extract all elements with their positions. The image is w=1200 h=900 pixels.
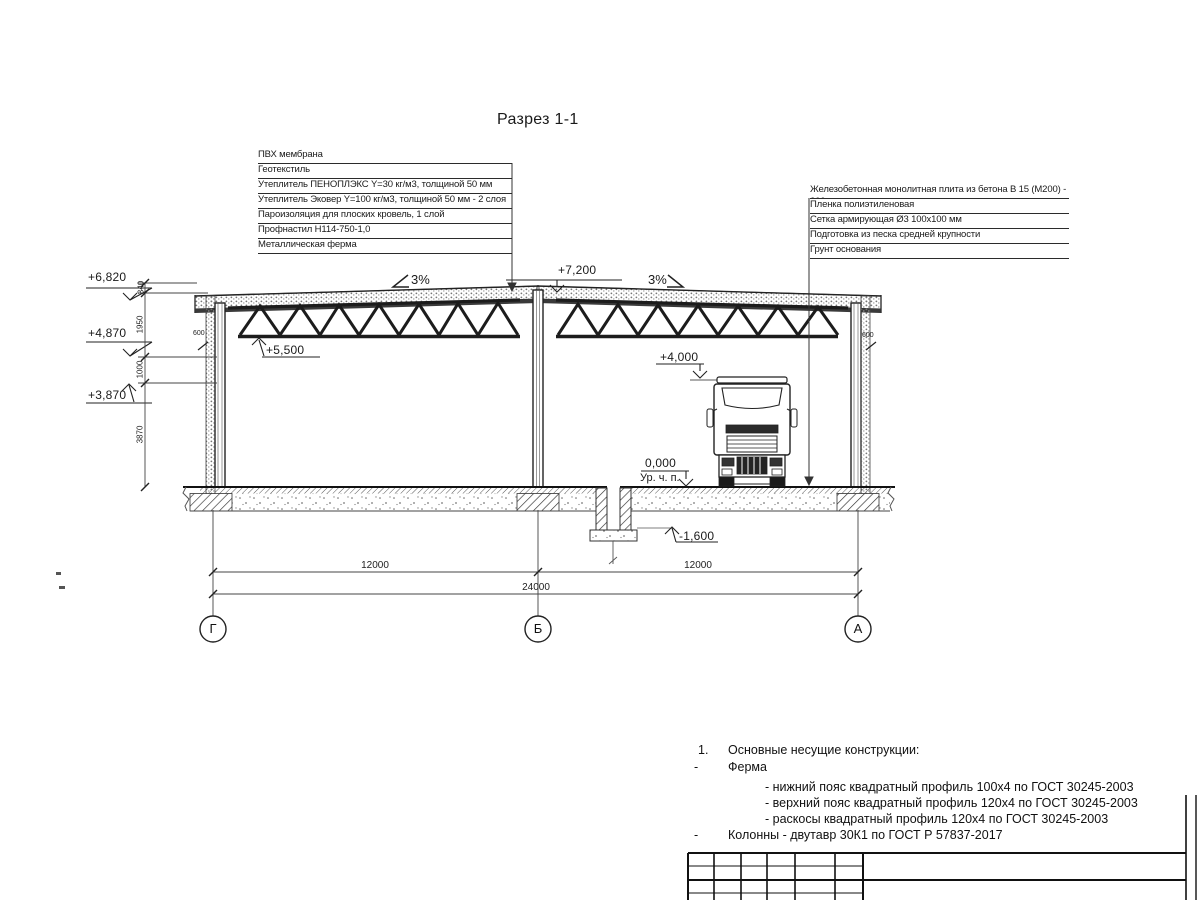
callout-row: Пленка полиэтиленовая (810, 199, 1069, 214)
dim-600-left: 600 (193, 330, 205, 337)
note-truss-item: - раскосы квадратный профиль 120х4 по ГО… (765, 812, 1108, 826)
callout-row: Геотекстиль (258, 164, 512, 179)
title-block (688, 853, 1186, 900)
elevation-eave-left: +6,820 (88, 270, 126, 284)
callout-row: Профнастил Н114-750-1,0 (258, 224, 512, 239)
note-number: 1. (698, 743, 708, 757)
elevation-truss-support: +4,870 (88, 326, 126, 340)
dim-1000: 1000 (136, 350, 145, 390)
axis-bubble-g: Г (200, 621, 226, 636)
elevation-ridge: +7,200 (558, 263, 596, 277)
slope-label-right: 3% (648, 272, 667, 287)
truss-left (228, 300, 520, 337)
elevation-clearance: +4,000 (660, 350, 698, 364)
elevation-wall-top: +3,870 (88, 388, 126, 402)
callout-row: Железобетонная монолитная плита из бетон… (810, 184, 1069, 199)
axis-bubble-b: Б (525, 621, 551, 636)
callout-row: ПВХ мембрана (258, 149, 512, 164)
note-truss-item: - нижний пояс квадратный профиль 100х4 п… (765, 780, 1134, 794)
callout-row: Пароизоляция для плоских кровель, 1 слой (258, 209, 512, 224)
drawing-sheet: { "title": "Разрез 1-1", "roof_callouts"… (0, 0, 1200, 900)
elevation-floor: 0,000 (645, 456, 676, 470)
stray-marks (56, 572, 65, 589)
column-left (215, 303, 225, 487)
truck (707, 377, 797, 486)
callout-row: Утеплитель ПЕНОПЛЭКС Y=30 кг/м3, толщино… (258, 179, 512, 194)
drawing-title: Разрез 1-1 (497, 111, 579, 129)
floor-level-note: Ур. ч. п. (640, 472, 680, 484)
dim-total: 24000 (506, 582, 566, 593)
slope-symbols (393, 275, 683, 287)
callout-row: Металлическая ферма (258, 239, 512, 254)
truss-right (556, 300, 848, 337)
dim-600-right: 600 (862, 332, 874, 339)
note-truss-item: - верхний пояс квадратный профиль 120х4 … (765, 796, 1138, 810)
dim-bay-left: 12000 (345, 560, 405, 571)
note-heading: Основные несущие конструкции: (728, 743, 919, 757)
callout-row: Грунт основания (810, 244, 1069, 259)
wall-panel-right (861, 296, 870, 500)
dim-3870: 3870 (136, 415, 145, 455)
column-center (533, 290, 543, 487)
note-truss-label: Ферма (728, 760, 767, 774)
axis-bubble-a: А (845, 621, 871, 636)
floor-slab (183, 487, 895, 511)
sheet-frame (1186, 795, 1196, 900)
callout-row: Сетка армирующая Ø3 100х100 мм (810, 214, 1069, 229)
note-bullet: - (694, 760, 698, 774)
dim-1950: 1950 (136, 305, 145, 345)
section-drawing (0, 0, 1200, 900)
slope-label-left: 3% (411, 272, 430, 287)
note-bullet: - (694, 828, 698, 842)
wall-panel-left (206, 296, 215, 500)
dim-340: 340 (137, 268, 146, 308)
elevation-pit: -1,600 (679, 529, 714, 543)
column-right (851, 303, 861, 487)
note-columns-item: Колонны - двутавр 30К1 по ГОСТ Р 57837-2… (728, 828, 1003, 842)
dim-bay-right: 12000 (668, 560, 728, 571)
callout-row: Подготовка из песка средней крупности (810, 229, 1069, 244)
callout-row: Утеплитель Эковер Y=100 кг/м3, толщиной … (258, 194, 512, 209)
elevation-truss-bottom: +5,500 (266, 343, 304, 357)
